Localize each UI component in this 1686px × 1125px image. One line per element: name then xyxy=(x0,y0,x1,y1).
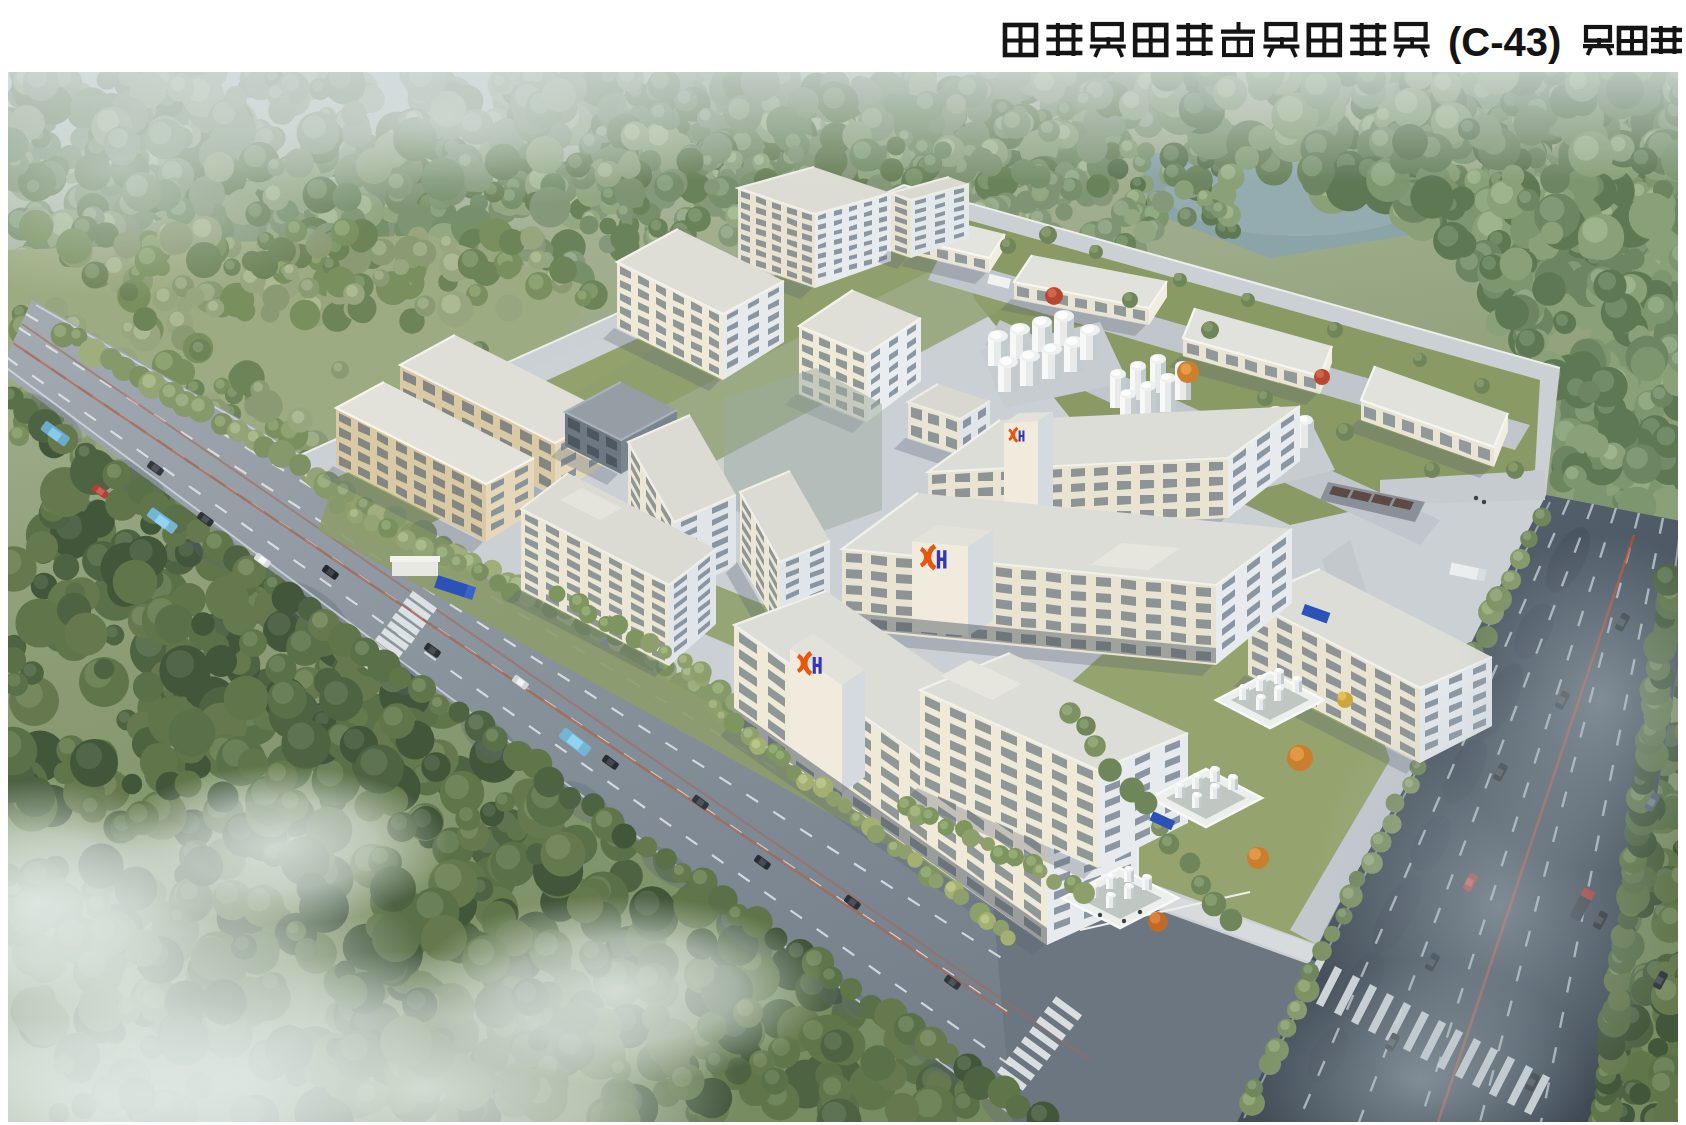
svg-text:(C-43): (C-43) xyxy=(1448,20,1561,64)
